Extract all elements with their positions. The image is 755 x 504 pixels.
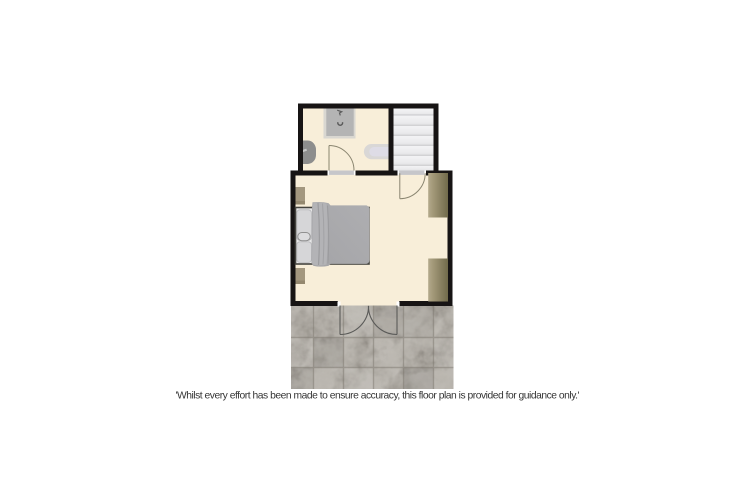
svg-text:'Whilst every effort has been: 'Whilst every effort has been made to en… (176, 390, 580, 401)
